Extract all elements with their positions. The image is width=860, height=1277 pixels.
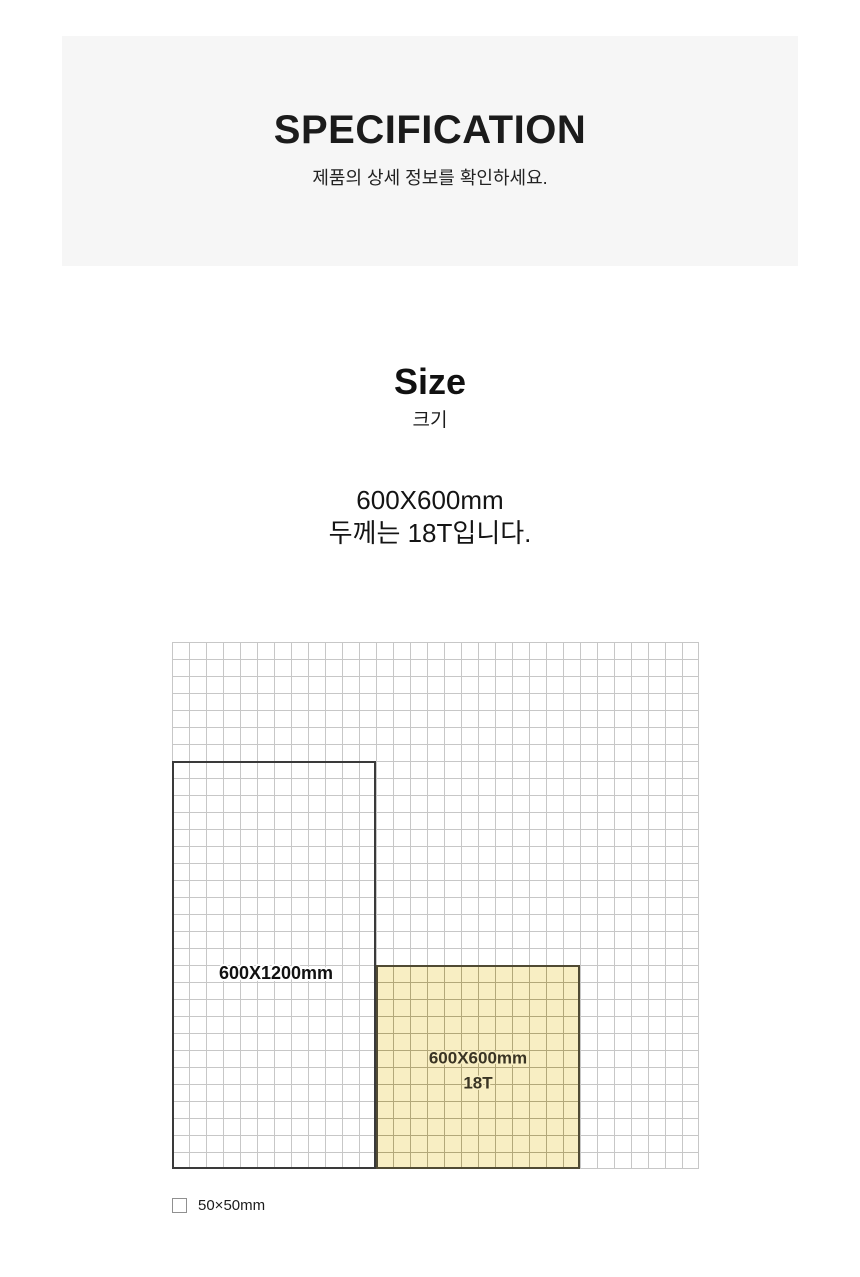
size-spec-dimensions: 600X600mm bbox=[0, 484, 860, 517]
size-spec-thickness: 두께는 18T입니다. bbox=[0, 517, 860, 550]
legend-cell-label: 50×50mm bbox=[198, 1197, 265, 1214]
size-spec-text: 600X600mm 두께는 18T입니다. bbox=[0, 484, 860, 550]
page-title: SPECIFICATION bbox=[62, 108, 798, 152]
header-band: SPECIFICATION 제품의 상세 정보를 확인하세요. bbox=[62, 36, 798, 266]
panel-600x600-thickness-label: 18T bbox=[463, 1074, 493, 1093]
specification-page: SPECIFICATION 제품의 상세 정보를 확인하세요. Size 크기 … bbox=[0, 0, 860, 1277]
page-subtitle: 제품의 상세 정보를 확인하세요. bbox=[62, 166, 798, 190]
grid-scale-legend: 50×50mm bbox=[172, 1197, 265, 1214]
panel-600x600-label: 600X600mm bbox=[429, 1049, 527, 1068]
size-diagram-svg: 600X1200mm 600X600mm 18T bbox=[172, 642, 699, 1169]
size-section-subtitle: 크기 bbox=[0, 410, 860, 432]
size-diagram: 600X1200mm 600X600mm 18T bbox=[172, 642, 699, 1169]
size-section-title: Size bbox=[0, 364, 860, 400]
panel-600x1200-label: 600X1200mm bbox=[219, 963, 333, 983]
legend-cell-swatch bbox=[172, 1198, 187, 1213]
